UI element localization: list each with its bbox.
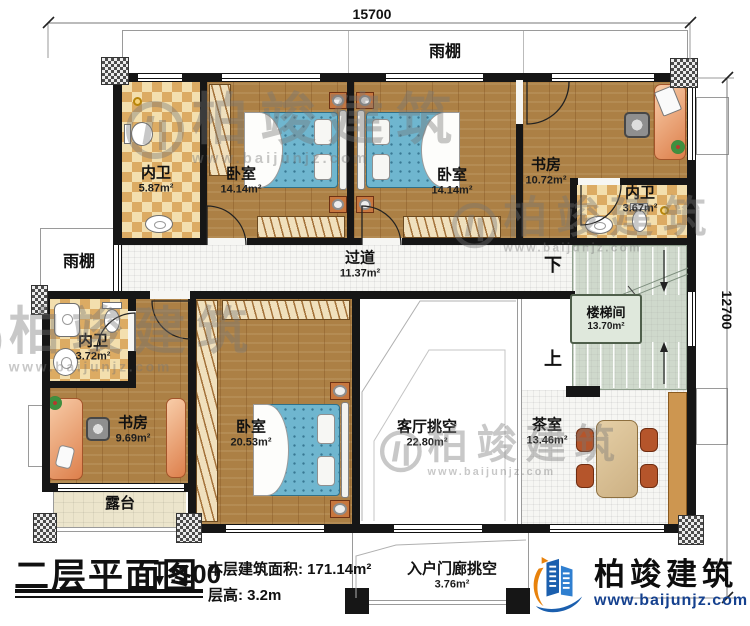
tea-chair xyxy=(640,464,658,488)
door-gap xyxy=(207,238,247,245)
room-label-bedroom-top-left: 卧室 14.14m² xyxy=(221,165,262,196)
living-tea-divider xyxy=(521,299,522,524)
door-gap xyxy=(128,311,136,351)
bed-headboard xyxy=(341,402,349,498)
wall-left-lower xyxy=(42,291,50,492)
toilet xyxy=(102,302,122,309)
room-label-tea-room: 茶室 13.46m² xyxy=(527,416,568,447)
room-label-bath-right: 内卫 3.67m² xyxy=(623,184,658,215)
room-name: 楼梯间 xyxy=(586,306,625,320)
wardrobe xyxy=(257,216,345,238)
tea-chair xyxy=(640,428,658,452)
toilet xyxy=(124,124,131,144)
window xyxy=(552,73,654,82)
towel-ring xyxy=(660,206,669,215)
canopy-top-division xyxy=(348,31,349,74)
toilet xyxy=(104,309,120,333)
wardrobe xyxy=(196,300,218,522)
window xyxy=(226,524,324,533)
canopy-top-division xyxy=(523,31,524,74)
canopy-left-label: 雨棚 xyxy=(63,252,95,271)
floor-plan: 楼梯间 13.70m² 15700 xyxy=(0,0,750,626)
room-label-study-left: 书房 9.69m² xyxy=(116,414,151,445)
bed-pillow xyxy=(317,456,335,486)
wardrobe xyxy=(403,216,501,238)
stair-up-label: 上 xyxy=(544,349,562,371)
corner-hatch-block xyxy=(176,513,202,543)
window xyxy=(386,73,483,82)
wall-bath-left-bottom xyxy=(42,381,136,388)
terrace-railing xyxy=(53,531,186,532)
room-area: 13.70m² xyxy=(587,321,624,332)
door-gap xyxy=(150,291,190,299)
porch-edge xyxy=(352,604,529,605)
nightstand xyxy=(356,92,374,109)
nightstand xyxy=(329,196,347,213)
corner-hatch-block xyxy=(670,58,698,88)
corner-hatch-block xyxy=(31,285,48,315)
window xyxy=(222,73,320,82)
living-tea-divider xyxy=(517,299,518,524)
towel-ring xyxy=(133,97,142,106)
brand-logo: 柏竣建筑 www.baijunjz.com xyxy=(532,554,748,614)
wall-stair-stub xyxy=(566,386,600,397)
title-underline xyxy=(15,596,203,598)
sink xyxy=(585,216,613,234)
title-underline xyxy=(15,589,203,593)
watermark-logo-icon xyxy=(0,314,1,367)
window xyxy=(550,524,664,533)
porch-edge xyxy=(352,600,529,601)
bed-pillow xyxy=(314,119,332,145)
room-label-study-top: 书房 10.72m² xyxy=(526,156,567,187)
window xyxy=(58,483,184,492)
exterior-platform xyxy=(696,388,728,445)
door-gap xyxy=(578,178,620,185)
canopy-top-label: 雨棚 xyxy=(429,42,461,61)
stairwell-label-box: 楼梯间 13.70m² xyxy=(570,294,642,344)
stair-treads-lower xyxy=(574,342,686,388)
sink xyxy=(145,215,173,233)
plant xyxy=(48,396,62,410)
stair-down-label: 下 xyxy=(544,255,562,277)
stair-treads-upper xyxy=(574,247,686,295)
plant xyxy=(671,140,685,154)
room-label-bath-top: 内卫 5.87m² xyxy=(139,164,174,195)
porch-column xyxy=(506,588,530,614)
bed-pillow xyxy=(317,414,335,444)
porch-column xyxy=(345,588,369,614)
wall-bedroom-large-left xyxy=(188,291,196,533)
room-label-porch-void: 入户门廊挑空 3.76m² xyxy=(407,560,497,591)
desk-chair xyxy=(86,417,110,441)
bed-pillow xyxy=(372,154,390,180)
living-void-floor xyxy=(358,299,518,524)
tea-table xyxy=(596,420,638,498)
bed-headboard xyxy=(339,110,347,190)
room-label-bedroom-top-right: 卧室 14.14m² xyxy=(432,166,473,197)
bed xyxy=(253,402,349,498)
sink xyxy=(53,348,78,376)
window xyxy=(687,292,696,346)
scale-arrow-icon xyxy=(152,560,167,587)
side-table xyxy=(166,398,186,478)
room-label-terrace: 露台 xyxy=(105,495,135,513)
brand-logo-icon xyxy=(532,554,586,614)
room-label-bedroom-large: 卧室 20.53m² xyxy=(231,418,272,449)
window xyxy=(138,73,182,82)
corner-hatch-block xyxy=(101,57,129,85)
dimension-top: 15700 xyxy=(340,6,404,22)
brand-text: 柏竣建筑 www.baijunjz.com xyxy=(594,558,748,610)
nightstand xyxy=(330,500,350,518)
corner-hatch-block xyxy=(33,513,57,543)
wall-corridor-top xyxy=(113,238,696,245)
door-gap xyxy=(516,80,523,124)
wall-bedrooms-divider xyxy=(347,73,354,245)
floor-height-line: 层高: 3.2m xyxy=(208,584,281,605)
bed-headboard xyxy=(357,110,365,190)
room-label-corridor: 过道 11.37m² xyxy=(340,249,380,280)
wall-bath-top-right xyxy=(200,73,207,245)
room-label-bath-left: 内卫 3.72m² xyxy=(76,332,111,363)
tea-chair xyxy=(576,428,594,452)
cabinet xyxy=(668,392,687,528)
bed-pillow xyxy=(372,119,390,145)
door-gap xyxy=(362,238,402,245)
wall-living-void-left xyxy=(352,291,360,533)
room-label-living-void: 客厅挑空 22.80m² xyxy=(397,418,457,449)
corner-hatch-block xyxy=(678,515,704,545)
dimension-right: 12700 xyxy=(719,285,735,335)
nightstand xyxy=(329,92,347,109)
wardrobe xyxy=(209,84,231,176)
desk-chair xyxy=(624,112,650,138)
canopy-top xyxy=(122,30,688,75)
toilet xyxy=(131,122,153,146)
wardrobe xyxy=(222,300,350,320)
nightstand xyxy=(330,382,350,400)
floor-area-line: 本层建筑面积: 171.14m² xyxy=(208,558,371,579)
exterior-platform xyxy=(696,97,729,155)
nightstand xyxy=(356,196,374,213)
window xyxy=(394,524,482,533)
window xyxy=(113,245,122,291)
tea-chair xyxy=(576,464,594,488)
terrace-railing xyxy=(53,527,186,528)
bed-pillow xyxy=(314,154,332,180)
window xyxy=(687,88,696,160)
wall-bath-right-left xyxy=(570,178,577,245)
